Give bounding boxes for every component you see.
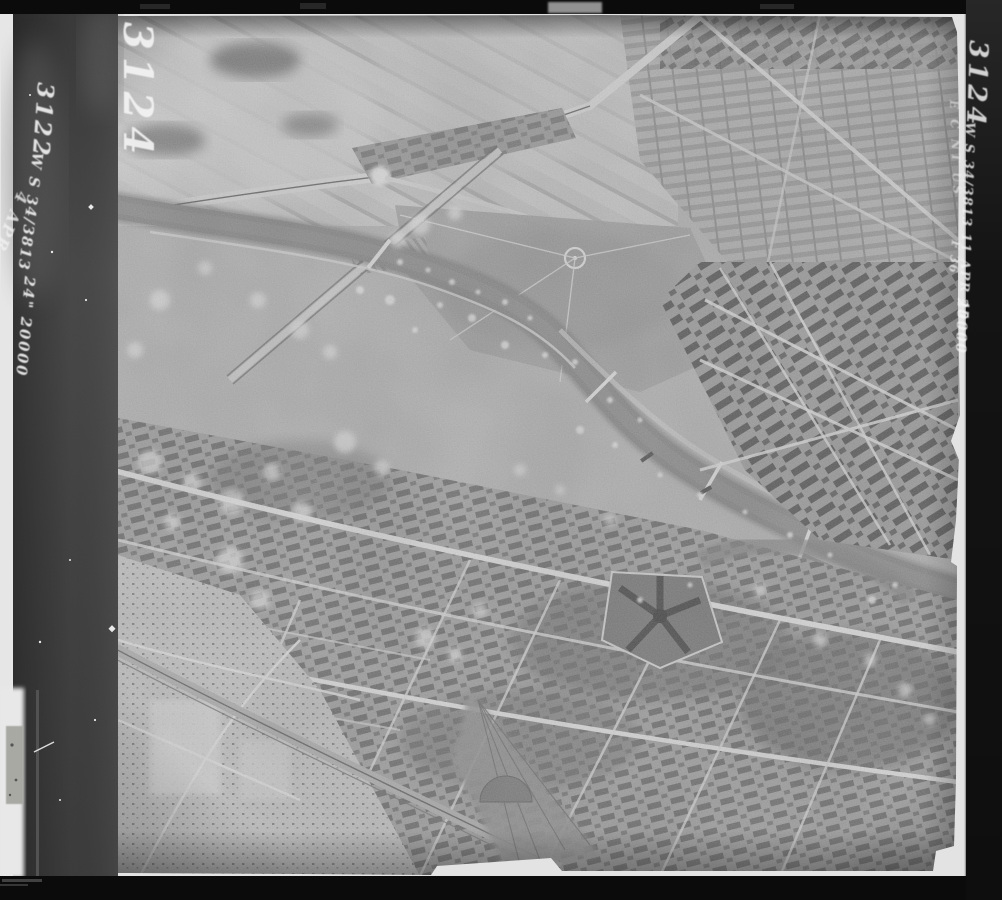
film-seam [36,690,39,876]
film-left-strip [0,5,120,878]
photo-area [80,12,968,878]
film-notch-tab [548,2,602,13]
aerial-photo-svg: 3124 3122 W S 34/3813 4 APR 45 24" 20000… [0,0,1002,900]
frame-number-left-inner: 3124 [114,22,161,161]
frame-number-right: 3124 [960,40,993,129]
film-scan: 3124 3122 W S 34/3813 4 APR 45 24" 20000… [0,0,1002,900]
tape-smudge [6,726,23,804]
scale-right: 20000 [952,297,970,355]
focal-right: F 36 [946,239,963,274]
frame-number-left-outer: 3122 [27,82,59,160]
